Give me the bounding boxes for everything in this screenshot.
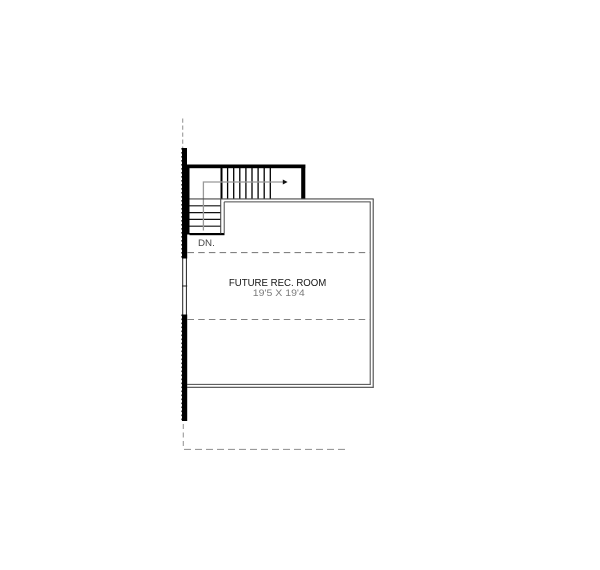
svg-text:19'5 X 19'4: 19'5 X 19'4 xyxy=(253,288,305,298)
svg-text:DN.: DN. xyxy=(198,238,215,249)
